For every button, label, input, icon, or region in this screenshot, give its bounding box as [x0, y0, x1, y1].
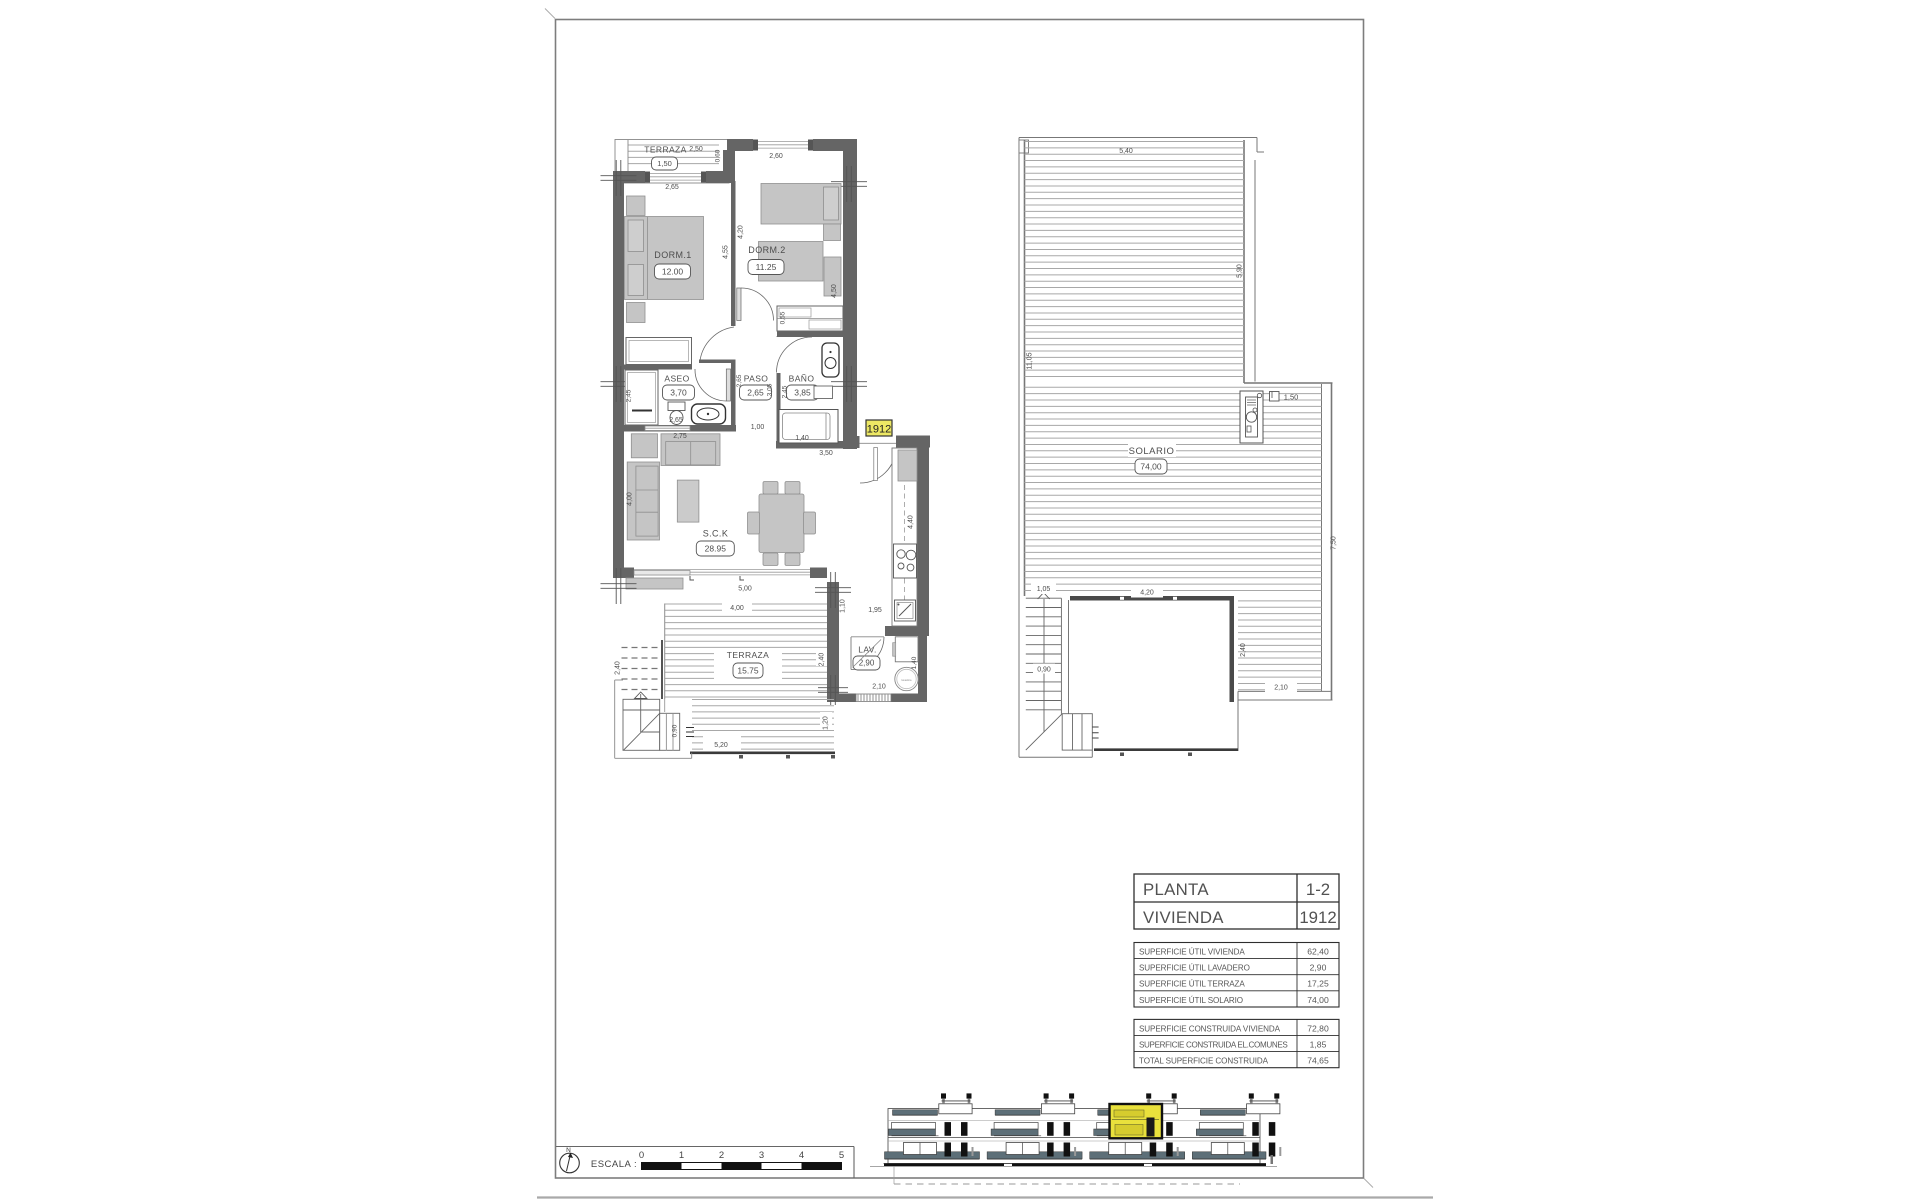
svg-text:1,95: 1,95: [868, 607, 882, 614]
svg-text:28.95: 28.95: [705, 543, 727, 553]
svg-text:SUPERFICIE ÚTIL TERRAZA: SUPERFICIE ÚTIL TERRAZA: [1139, 980, 1245, 989]
svg-text:1,40: 1,40: [911, 656, 918, 669]
svg-text:TERRAZA: TERRAZA: [727, 650, 769, 660]
svg-text:SUPERFICIE ÚTIL VIVIENDA: SUPERFICIE ÚTIL VIVIENDA: [1139, 948, 1245, 957]
svg-text:5,40: 5,40: [1119, 148, 1133, 155]
svg-text:2,10: 2,10: [1274, 685, 1288, 692]
svg-text:PASO: PASO: [744, 374, 769, 384]
svg-text:2,65: 2,65: [669, 417, 683, 424]
svg-text:TOTAL SUPERFICIE CONSTRUIDA: TOTAL SUPERFICIE CONSTRUIDA: [1139, 1056, 1269, 1065]
svg-text:0,60: 0,60: [715, 149, 722, 162]
svg-text:4,40: 4,40: [908, 515, 915, 529]
svg-text:1,20: 1,20: [823, 716, 830, 730]
svg-text:TERRAZA: TERRAZA: [644, 145, 686, 155]
svg-text:0,90: 0,90: [672, 724, 679, 737]
svg-text:SOLARIO: SOLARIO: [1129, 446, 1175, 457]
svg-text:3,85: 3,85: [794, 387, 811, 397]
svg-text:SUPERFICIE ÚTIL SOLARIO: SUPERFICIE ÚTIL SOLARIO: [1139, 996, 1243, 1005]
svg-text:2,75: 2,75: [673, 433, 687, 440]
svg-text:2,40: 2,40: [615, 661, 622, 675]
svg-text:4,20: 4,20: [1140, 590, 1154, 597]
svg-text:4,00: 4,00: [730, 605, 744, 612]
svg-text:BAÑO: BAÑO: [789, 374, 815, 384]
svg-text:1,10: 1,10: [840, 599, 847, 613]
svg-text:SUPERFICIE ÚTIL LAVADERO: SUPERFICIE ÚTIL LAVADERO: [1139, 964, 1250, 973]
svg-text:lavadora: lavadora: [902, 678, 913, 682]
svg-text:17,25: 17,25: [1307, 979, 1329, 989]
svg-text:3,50: 3,50: [819, 450, 833, 457]
svg-text:0: 0: [639, 1150, 644, 1161]
svg-text:1,00: 1,00: [751, 424, 765, 431]
svg-text:2,65: 2,65: [747, 387, 764, 397]
svg-text:2,40: 2,40: [1240, 643, 1247, 657]
svg-text:74,65: 74,65: [1307, 1055, 1329, 1065]
svg-text:1,50: 1,50: [1284, 393, 1299, 402]
svg-text:11.25: 11.25: [756, 262, 777, 272]
svg-text:3,70: 3,70: [670, 387, 687, 397]
svg-text:ASEO: ASEO: [664, 374, 689, 384]
svg-text:1,05: 1,05: [1037, 586, 1051, 593]
svg-text:1,50: 1,50: [657, 159, 672, 168]
svg-text:4,55: 4,55: [723, 245, 730, 259]
svg-text:62,40: 62,40: [1307, 947, 1329, 957]
svg-text:0,90: 0,90: [1037, 667, 1051, 674]
svg-text:0,55: 0,55: [780, 311, 787, 324]
svg-text:2,65: 2,65: [736, 374, 743, 387]
svg-text:DORM.1: DORM.1: [654, 250, 691, 260]
svg-text:2,40: 2,40: [819, 653, 826, 667]
svg-text:3,05: 3,05: [767, 383, 774, 396]
svg-text:1,40: 1,40: [795, 435, 809, 442]
svg-text:1: 1: [679, 1150, 684, 1161]
svg-text:1912: 1912: [1299, 908, 1336, 927]
svg-text:2,45: 2,45: [626, 389, 633, 402]
svg-text:2,60: 2,60: [769, 153, 783, 160]
svg-text:PLANTA: PLANTA: [1143, 880, 1209, 899]
svg-text:S.C.K: S.C.K: [703, 529, 729, 539]
svg-text:SUPERFICIE CONSTRUIDA VIVIENDA: SUPERFICIE CONSTRUIDA VIVIENDA: [1139, 1024, 1281, 1033]
svg-text:1912: 1912: [867, 424, 891, 436]
svg-text:2,65: 2,65: [665, 184, 679, 191]
svg-text:74,00: 74,00: [1140, 461, 1162, 471]
svg-text:12.00: 12.00: [662, 266, 684, 276]
svg-text:3: 3: [759, 1150, 764, 1161]
svg-text:72,80: 72,80: [1307, 1023, 1329, 1033]
svg-text:2: 2: [719, 1150, 724, 1161]
svg-text:5,90: 5,90: [1237, 264, 1244, 278]
svg-text:2,45: 2,45: [782, 385, 789, 398]
svg-text:11,05: 11,05: [1027, 352, 1034, 369]
svg-text:1,85: 1,85: [1310, 1039, 1327, 1049]
svg-text:4: 4: [799, 1150, 804, 1161]
svg-text:5,20: 5,20: [714, 742, 728, 749]
svg-text:4,50: 4,50: [831, 284, 838, 298]
svg-text:2,90: 2,90: [1310, 963, 1327, 973]
svg-text:15.75: 15.75: [737, 665, 759, 675]
svg-text:1-2: 1-2: [1306, 880, 1330, 899]
svg-text:2,10: 2,10: [872, 684, 886, 691]
svg-text:4,00: 4,00: [627, 492, 634, 506]
svg-text:2,90: 2,90: [859, 659, 875, 668]
svg-text:7,50: 7,50: [1331, 536, 1338, 550]
svg-text:DORM.2: DORM.2: [748, 245, 785, 255]
svg-text:ESCALA :: ESCALA :: [591, 1159, 637, 1170]
svg-text:4,20: 4,20: [738, 225, 745, 239]
svg-text:74,00: 74,00: [1307, 995, 1329, 1005]
svg-text:5,00: 5,00: [738, 586, 752, 593]
svg-text:SUPERFICIE CONSTRUIDA EL.COMUN: SUPERFICIE CONSTRUIDA EL.COMUNES: [1139, 1040, 1288, 1049]
svg-text:5: 5: [839, 1150, 844, 1161]
svg-text:2,50: 2,50: [689, 146, 703, 153]
svg-text:VIVIENDA: VIVIENDA: [1143, 908, 1224, 927]
